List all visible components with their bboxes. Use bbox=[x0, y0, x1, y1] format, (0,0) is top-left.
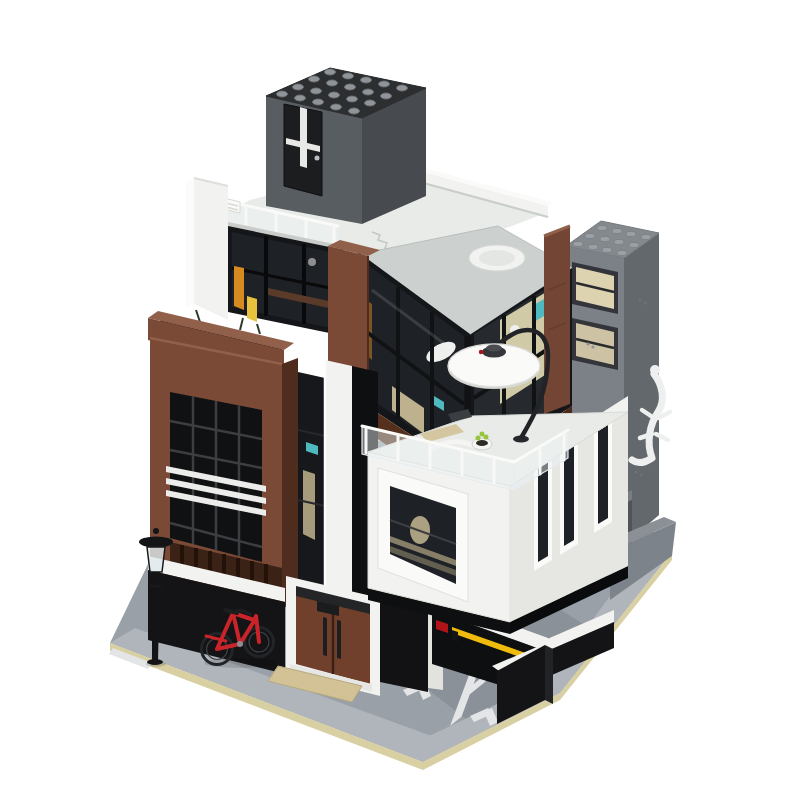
door-handle bbox=[323, 617, 327, 656]
penthouse-door bbox=[284, 104, 322, 196]
corner-wall bbox=[186, 178, 228, 320]
door-knob bbox=[315, 156, 320, 161]
white-pilaster bbox=[325, 360, 352, 596]
amber-pane bbox=[234, 266, 244, 310]
lamp-cap bbox=[139, 537, 173, 548]
interior-bottles bbox=[303, 470, 315, 540]
interior-item bbox=[308, 258, 316, 266]
lamp-base bbox=[147, 659, 163, 665]
lamp-finial bbox=[153, 528, 159, 534]
mid-curtain-wall bbox=[298, 372, 325, 588]
yellow-pane bbox=[247, 296, 257, 322]
crank bbox=[237, 641, 243, 647]
lamp-lantern bbox=[147, 547, 165, 572]
plant-leaves bbox=[476, 436, 481, 441]
door-handle bbox=[337, 620, 341, 659]
mid-section bbox=[298, 360, 378, 600]
product-photo-canvas: P bbox=[0, 0, 800, 800]
brown-corner-panel bbox=[544, 226, 570, 414]
building-illustration: P bbox=[0, 0, 800, 800]
lamp-red-detail bbox=[479, 350, 483, 354]
penthouse bbox=[266, 68, 426, 224]
